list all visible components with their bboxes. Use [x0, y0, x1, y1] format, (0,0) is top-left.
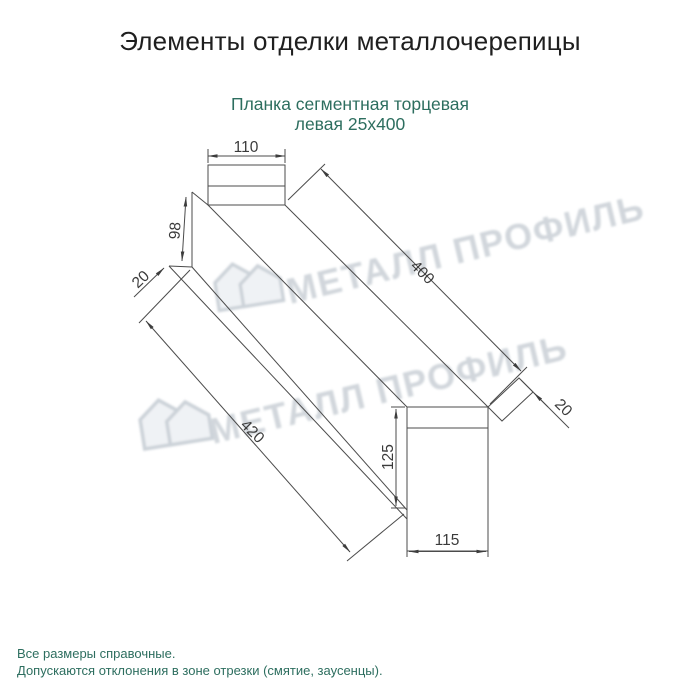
metallprofil-house-icon — [138, 393, 213, 449]
footer-note-line2: Допускаются отклонения в зоне отрезки (с… — [17, 663, 383, 680]
dim-115: 115 — [435, 532, 460, 549]
dim-125: 125 — [380, 444, 397, 470]
footer-note-line1: Все размеры справочные. — [17, 646, 383, 663]
dim-98: 98 — [166, 221, 184, 239]
watermark-text: МЕТАЛЛ ПРОФИЛЬ — [282, 186, 648, 312]
page: Элементы отделки металлочерепицы Планка … — [0, 0, 700, 700]
footer-notes: Все размеры справочные. Допускаются откл… — [17, 646, 383, 679]
watermark-layer: МЕТАЛЛ ПРОФИЛЬ МЕТАЛЛ ПРОФИЛЬ — [138, 186, 649, 452]
technical-drawing: МЕТАЛЛ ПРОФИЛЬ МЕТАЛЛ ПРОФИЛЬ — [0, 0, 700, 700]
dim-20-left: 20 — [129, 267, 153, 291]
dim-110: 110 — [234, 139, 259, 156]
dim-20-right: 20 — [551, 396, 575, 420]
watermark-2: МЕТАЛЛ ПРОФИЛЬ — [138, 326, 572, 452]
